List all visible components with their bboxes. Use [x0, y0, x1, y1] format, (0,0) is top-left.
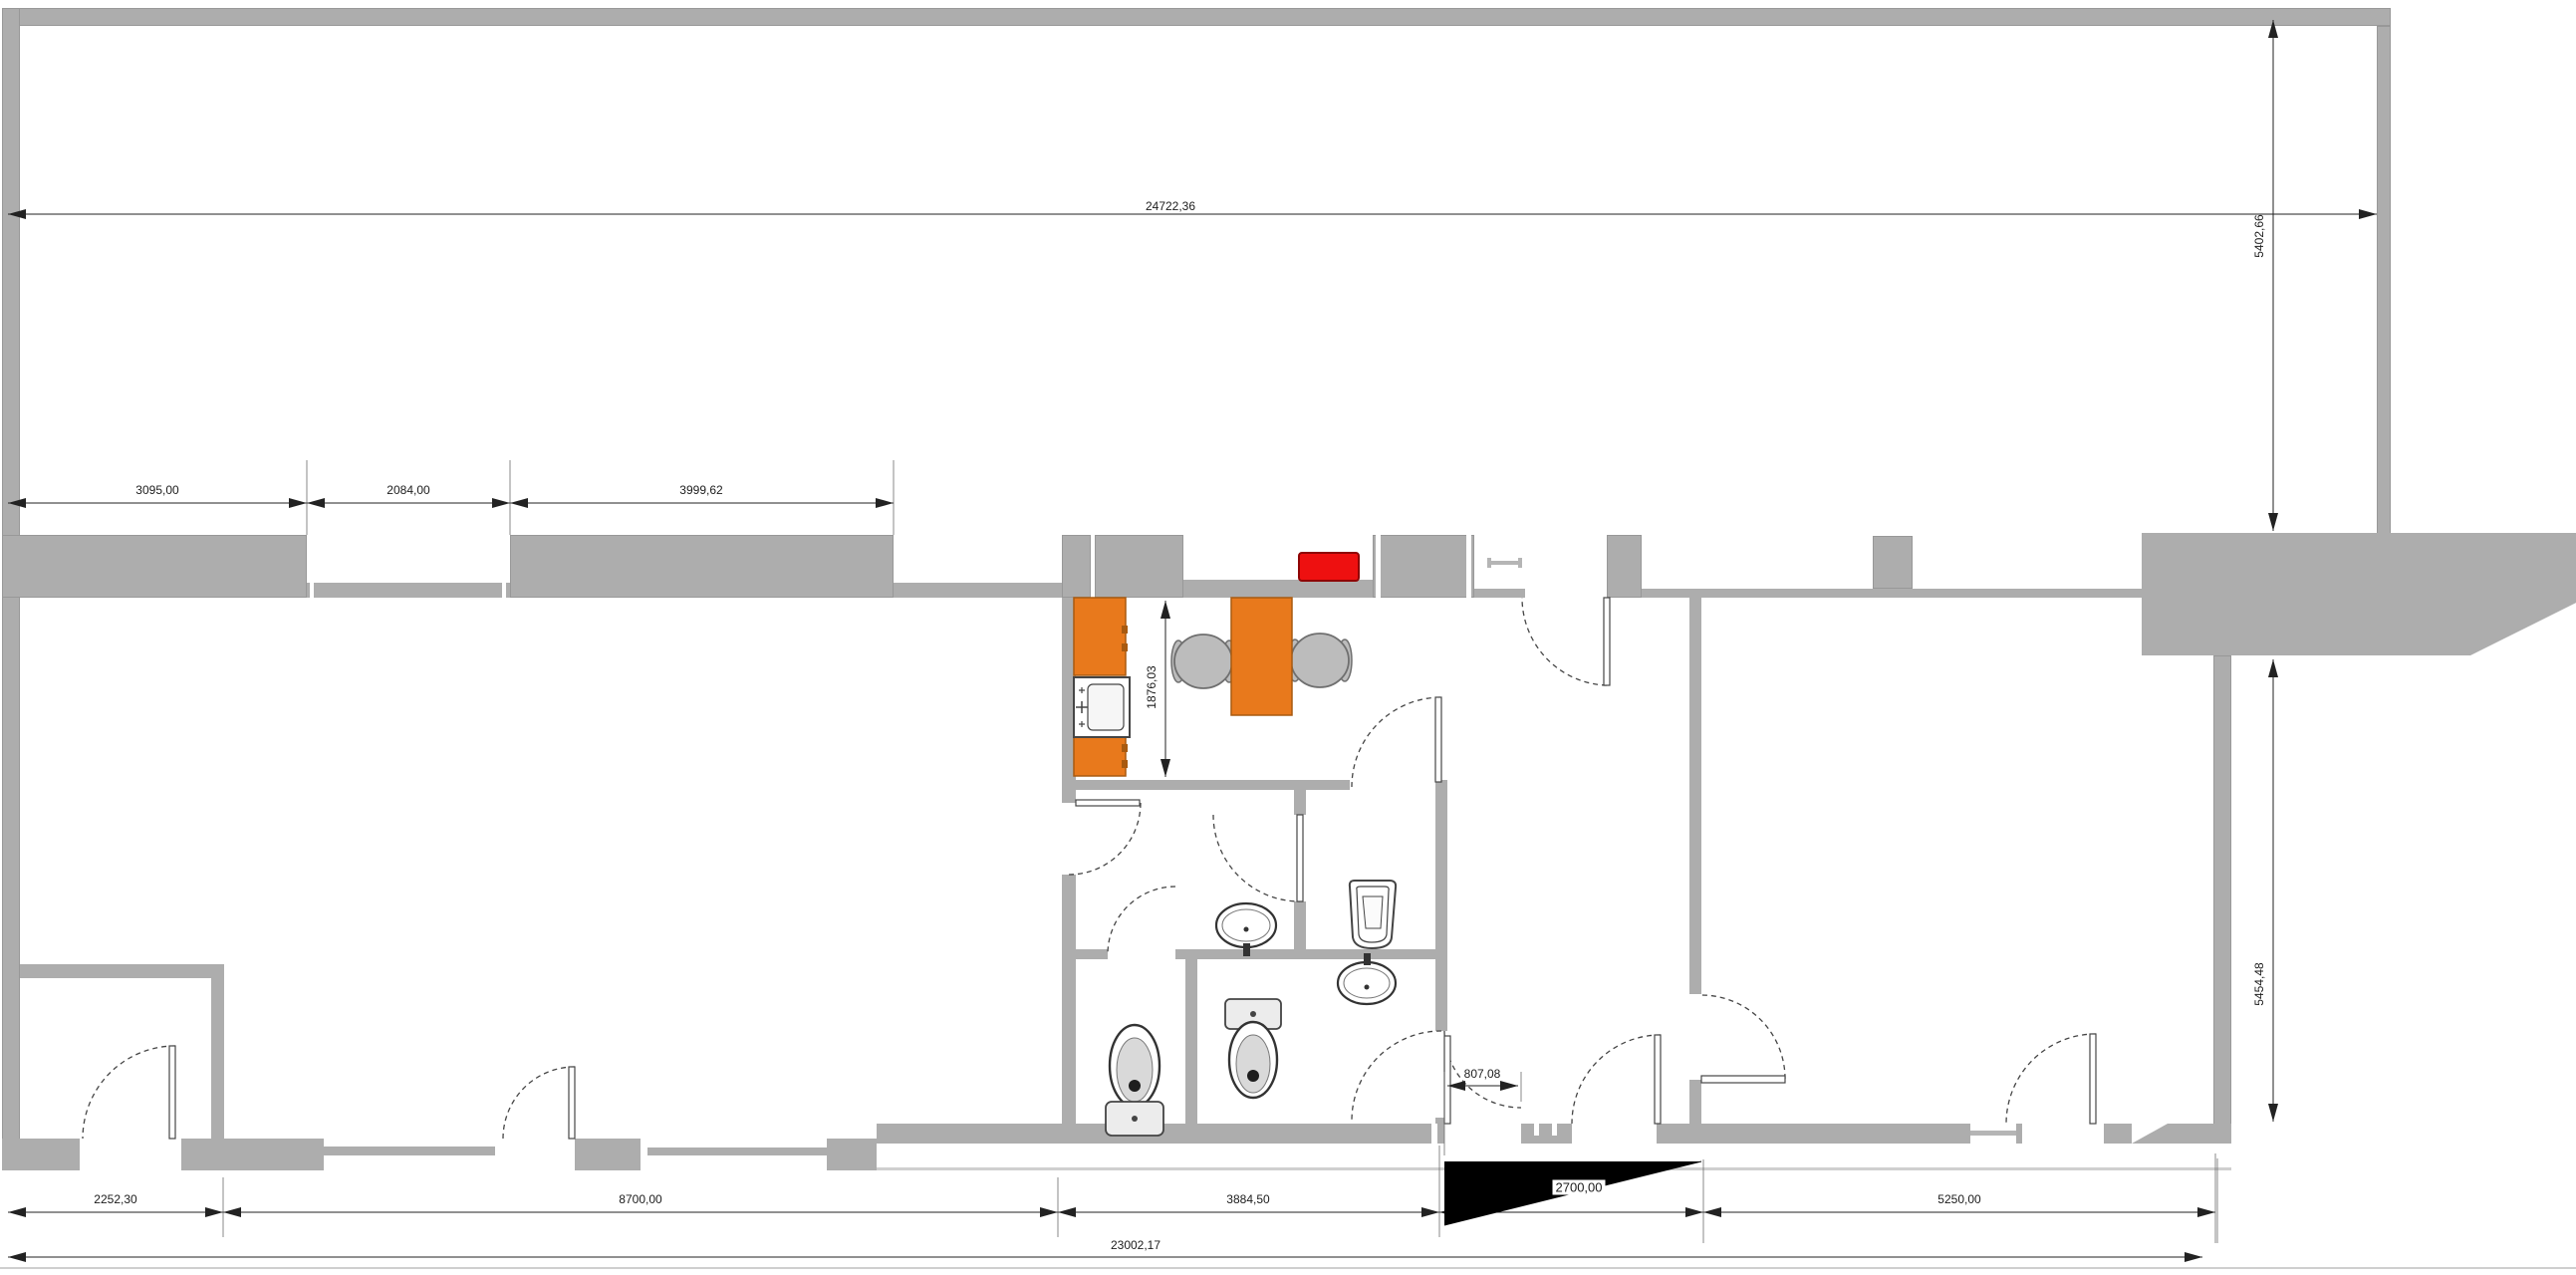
kitchen-sink-icon: [1074, 677, 1130, 737]
door-arc: [1572, 1035, 1661, 1124]
cabinet-knob: [1122, 760, 1128, 768]
door-arc: [2006, 1034, 2096, 1124]
dim-label-bottom-seg4: 5250,00: [1937, 1192, 1980, 1206]
kitchen-cabinet: [1074, 598, 1126, 675]
door-arc: [503, 1067, 575, 1139]
door-leaf: [1444, 1036, 1450, 1124]
dim-label-left-seg1: 3095,00: [135, 483, 178, 497]
dim-label-upper-right-height: 5402,66: [2252, 214, 2266, 257]
floor-plan-canvas: 24722,36 5402,66 3095,00 2084,00 3999,62…: [0, 0, 2576, 1275]
dim-label-left-seg2: 2084,00: [386, 483, 429, 497]
cabinet-knob: [1122, 744, 1128, 752]
dim-label-lower-right-height: 5454,48: [2252, 962, 2266, 1005]
dim-label-bottom-seg3: 3884,50: [1226, 1192, 1269, 1206]
dim-label-bottom-total: 23002,17: [1111, 1238, 1160, 1252]
dim-label-kitchen-depth: 1876,03: [1145, 665, 1159, 708]
cabinet-knob: [1122, 643, 1128, 651]
door-leaf: [1604, 598, 1610, 685]
door-leaf: [169, 1046, 175, 1139]
page-border-line: [0, 1267, 2576, 1269]
toilet-icon: [1225, 999, 1281, 1098]
dim-label-left-seg3: 3999,62: [679, 483, 722, 497]
door-arc: [1701, 995, 1785, 1079]
door-leaf: [1435, 697, 1441, 782]
door-leaf: [1701, 1076, 1785, 1083]
door-leaf: [1076, 800, 1140, 806]
door-leaf: [1655, 1035, 1661, 1124]
door-arc: [83, 1046, 175, 1139]
cabinet-knob: [1122, 626, 1128, 634]
urinal-icon: [1350, 881, 1396, 948]
desk: [1231, 598, 1292, 715]
toilet-icon: [1106, 1025, 1163, 1136]
door-arc: [1352, 697, 1441, 787]
red-appliance: [1299, 553, 1359, 581]
door-arc: [1108, 887, 1175, 954]
door-arc: [1352, 1031, 1441, 1121]
door-arc: [1069, 803, 1141, 875]
door-leaf: [2090, 1034, 2096, 1124]
office-chair-icon: [1171, 635, 1236, 688]
dim-label-bottom-seg1: 2252,30: [94, 1192, 136, 1206]
door-leaf: [569, 1067, 575, 1139]
door-arc: [1522, 598, 1607, 685]
plan-symbols-layer: [0, 0, 2576, 1275]
door-leaf: [1297, 815, 1303, 901]
office-chair-icon: [1288, 634, 1352, 687]
kitchen-cabinet: [1074, 737, 1126, 776]
dim-label-ramp-width: 2700,00: [1553, 1180, 1606, 1195]
dim-label-entry-door-width: 807,08: [1464, 1067, 1501, 1081]
door-arc: [1213, 815, 1300, 901]
wash-basin-icon: [1338, 953, 1396, 1004]
wash-basin-icon: [1216, 903, 1276, 956]
dim-label-top-width: 24722,36: [1146, 199, 1195, 213]
dim-label-bottom-seg2: 8700,00: [619, 1192, 661, 1206]
